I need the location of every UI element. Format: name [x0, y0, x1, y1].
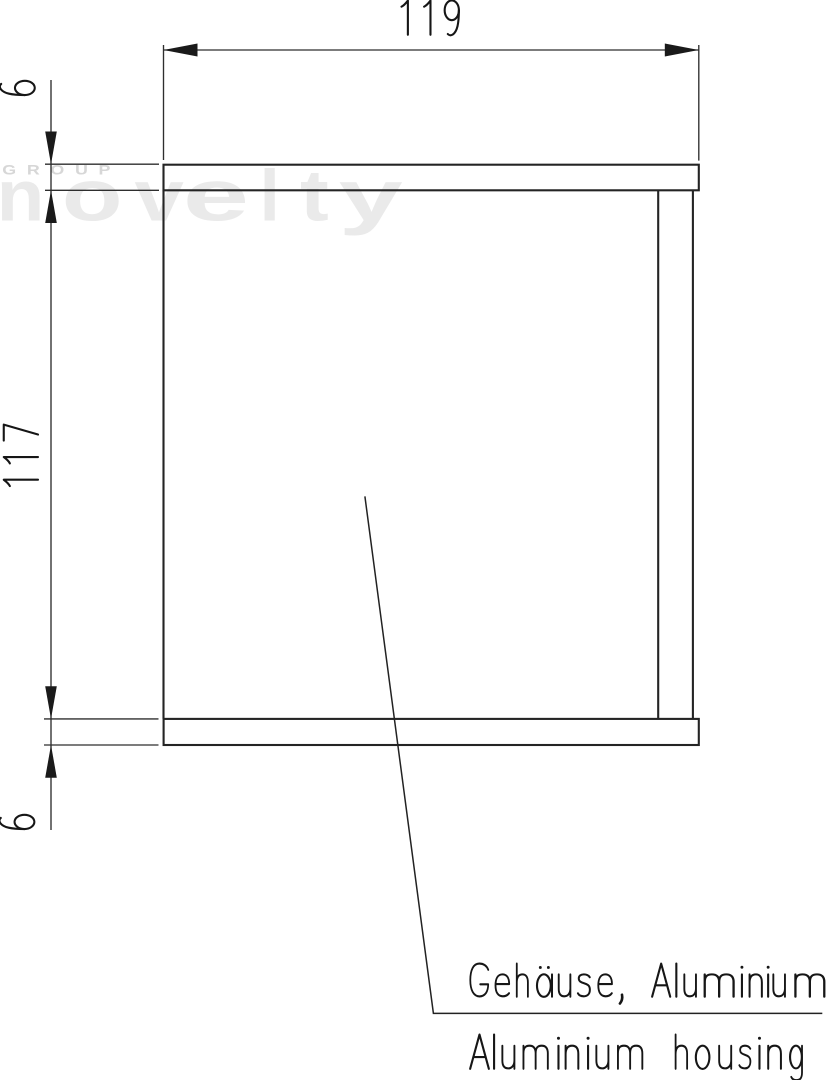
svg-text:o: o: [62, 156, 123, 237]
svg-text:n: n: [0, 155, 44, 235]
svg-text:l: l: [259, 157, 280, 237]
svg-text:y: y: [339, 156, 403, 236]
svg-text:e: e: [183, 156, 249, 236]
svg-text:v: v: [135, 156, 184, 236]
svg-text:t: t: [300, 155, 329, 236]
